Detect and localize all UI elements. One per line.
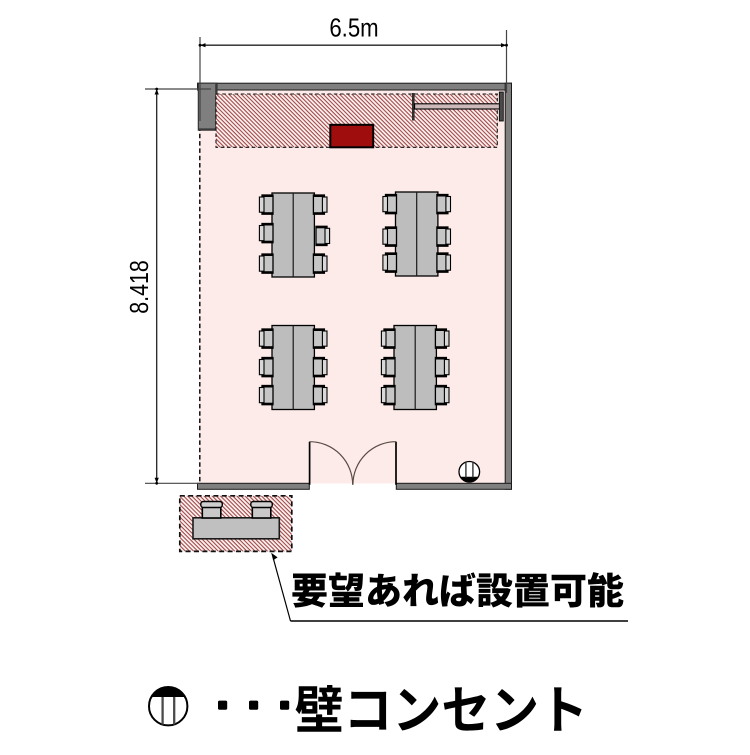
- svg-text:8.418: 8.418: [125, 260, 153, 314]
- svg-text:6.5m: 6.5m: [329, 14, 378, 43]
